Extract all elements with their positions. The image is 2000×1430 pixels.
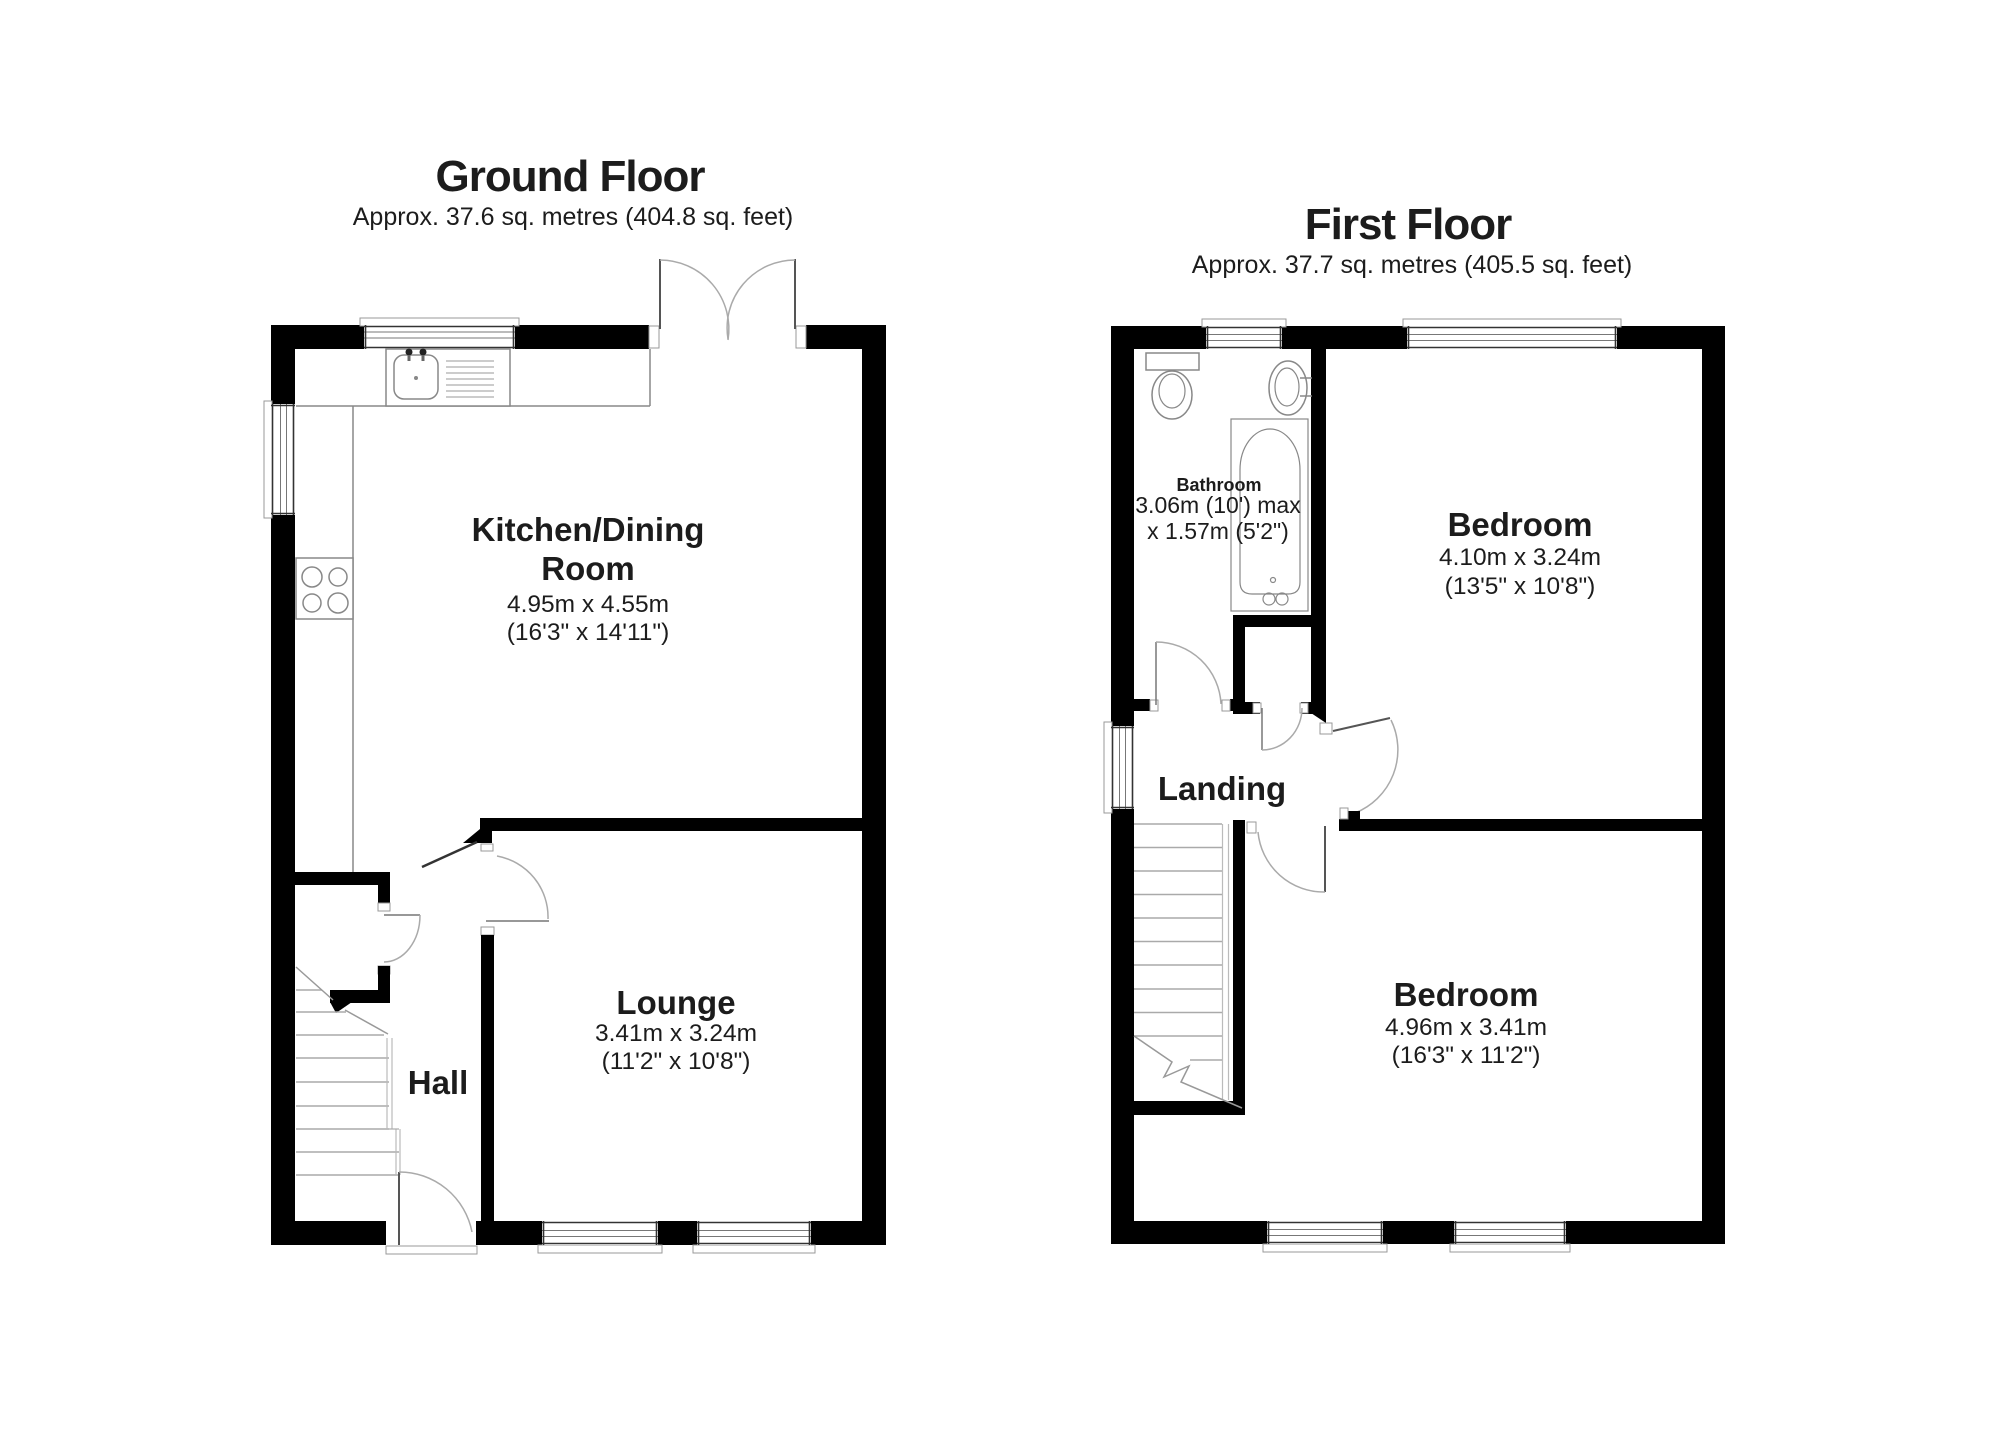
svg-text:(11'2" x 10'8"): (11'2" x 10'8") [602, 1048, 751, 1075]
svg-text:First Floor: First Floor [1305, 200, 1512, 249]
svg-text:3.41m x 3.24m: 3.41m x 3.24m [595, 1020, 757, 1047]
svg-text:Approx. 37.6 sq. metres (404.8: Approx. 37.6 sq. metres (404.8 sq. feet) [353, 203, 794, 231]
svg-text:x 1.57m (5'2"): x 1.57m (5'2") [1147, 518, 1289, 544]
svg-text:Bedroom: Bedroom [1448, 506, 1593, 543]
svg-text:Ground Floor: Ground Floor [435, 152, 705, 201]
svg-text:(16'3" x 14'11"): (16'3" x 14'11") [507, 619, 670, 646]
svg-text:Lounge: Lounge [616, 984, 735, 1021]
svg-text:Approx. 37.7 sq. metres (405.5: Approx. 37.7 sq. metres (405.5 sq. feet) [1192, 251, 1633, 279]
svg-text:4.96m x 3.41m: 4.96m x 3.41m [1385, 1014, 1547, 1041]
svg-text:Room: Room [541, 550, 635, 587]
svg-text:(16'3" x 11'2"): (16'3" x 11'2") [1392, 1042, 1541, 1069]
svg-text:4.95m x 4.55m: 4.95m x 4.55m [507, 591, 669, 618]
svg-text:Hall: Hall [408, 1064, 469, 1101]
svg-text:Bedroom: Bedroom [1394, 976, 1539, 1013]
svg-text:Kitchen/Dining: Kitchen/Dining [472, 511, 705, 548]
svg-text:Landing: Landing [1158, 770, 1286, 807]
svg-text:4.10m x 3.24m: 4.10m x 3.24m [1439, 544, 1601, 571]
svg-text:3.06m (10') max: 3.06m (10') max [1135, 492, 1301, 518]
svg-text:(13'5" x 10'8"): (13'5" x 10'8") [1445, 573, 1596, 600]
